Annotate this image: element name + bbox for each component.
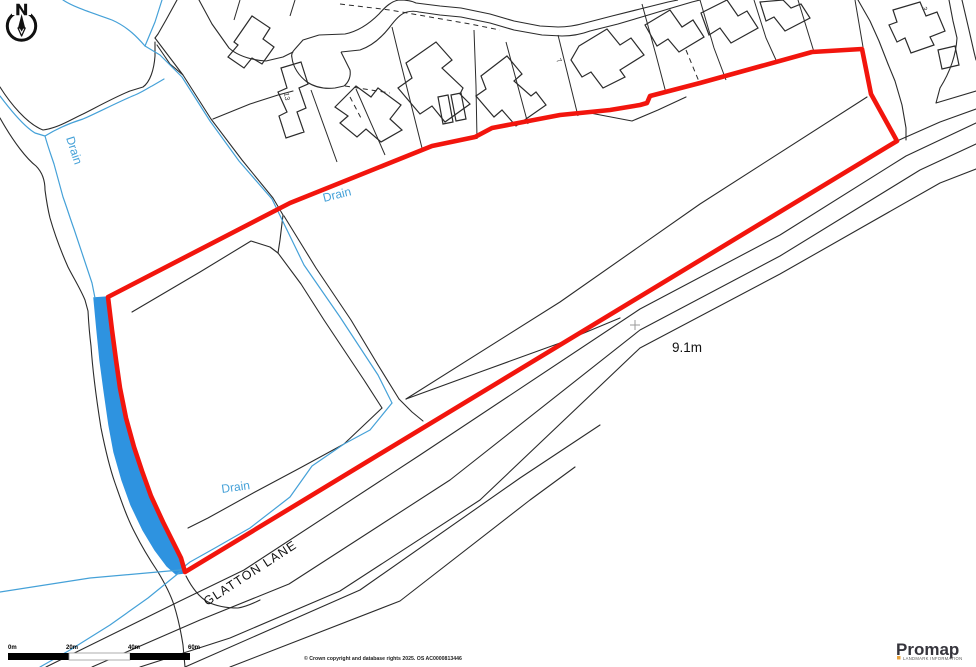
svg-text:13: 13 <box>282 92 290 101</box>
svg-text:40m: 40m <box>128 645 140 651</box>
svg-text:9.1m: 9.1m <box>672 340 702 355</box>
svg-text:© Crown copyright and database: © Crown copyright and database rights 20… <box>304 655 462 662</box>
svg-text:LANDMARK INFORMATION: LANDMARK INFORMATION <box>903 656 962 661</box>
svg-text:20m: 20m <box>66 645 78 651</box>
svg-text:0m: 0m <box>8 645 17 651</box>
svg-text:60m: 60m <box>188 645 200 651</box>
